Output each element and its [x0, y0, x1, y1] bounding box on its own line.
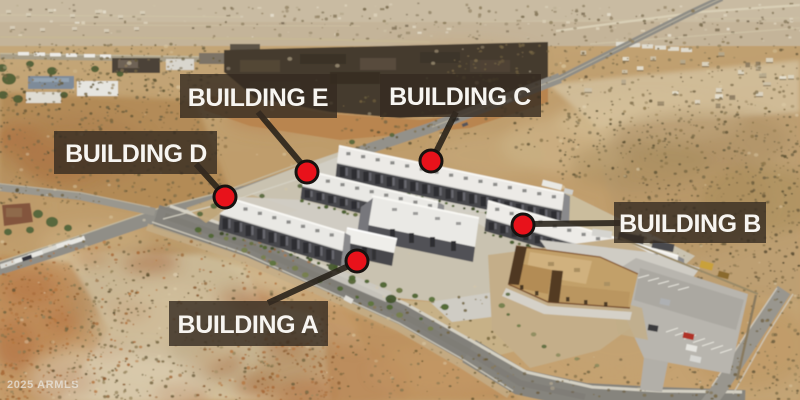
- svg-text:2025 ARMLS: 2025 ARMLS: [7, 379, 79, 391]
- svg-text:BUILDING E: BUILDING E: [188, 84, 328, 112]
- svg-text:BUILDING B: BUILDING B: [619, 210, 761, 238]
- svg-text:BUILDING C: BUILDING C: [389, 83, 531, 111]
- svg-text:BUILDING D: BUILDING D: [65, 140, 207, 168]
- svg-text:BUILDING A: BUILDING A: [178, 311, 319, 339]
